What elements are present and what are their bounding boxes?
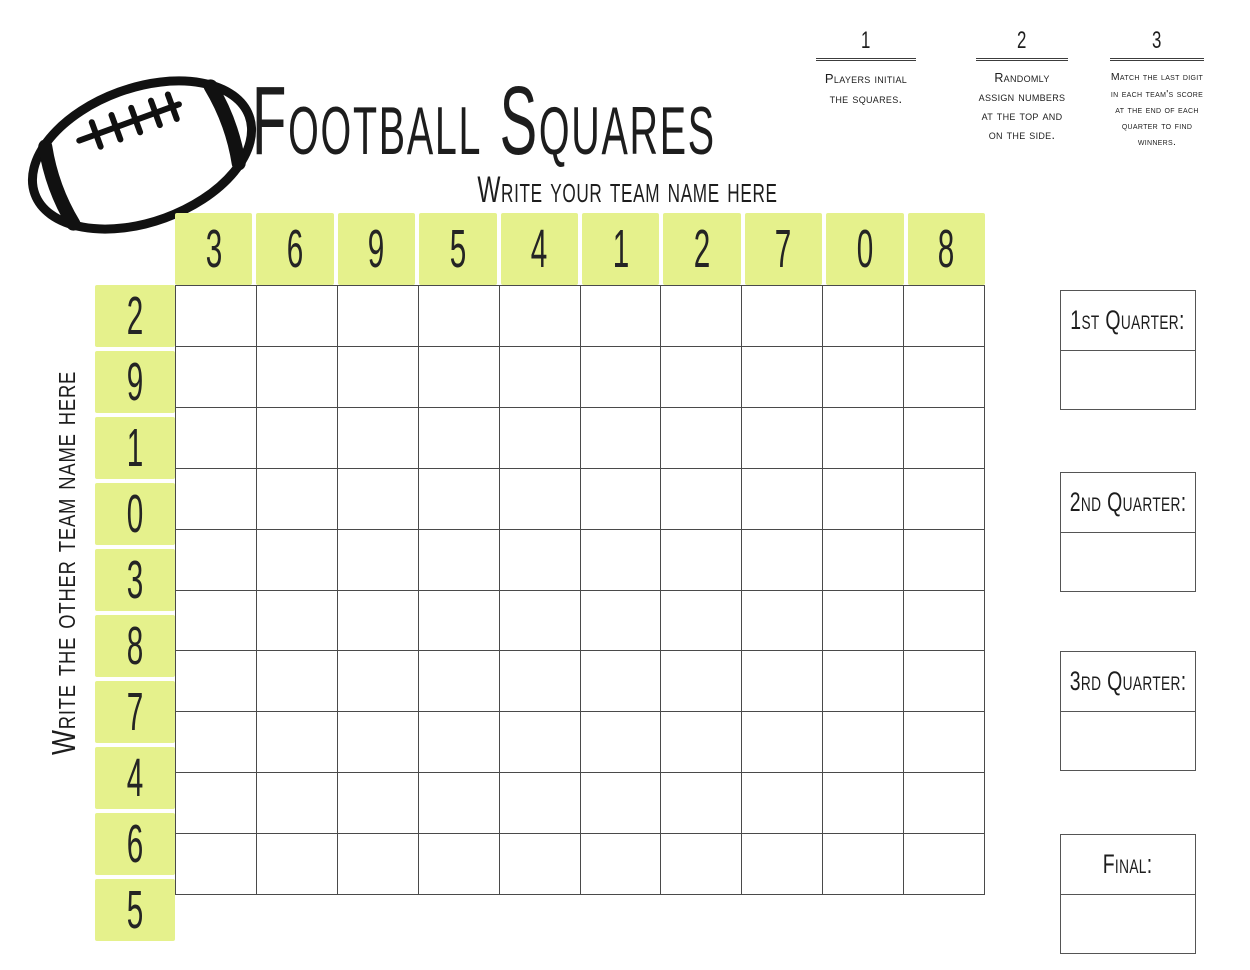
grid-cell[interactable] xyxy=(176,286,257,347)
grid-cell[interactable] xyxy=(661,651,742,712)
score-box-final-label: Final: xyxy=(1061,835,1195,895)
top-number-cell: 4 xyxy=(501,213,578,285)
grid-cell[interactable] xyxy=(500,469,581,530)
side-number-cell: 1 xyxy=(95,417,175,479)
grid-cell[interactable] xyxy=(419,530,500,591)
team-name-side-label-text: Write the other team name here xyxy=(47,371,81,755)
top-number: 5 xyxy=(450,218,467,280)
grid-cell[interactable] xyxy=(581,347,662,408)
side-number: 3 xyxy=(127,549,144,611)
grid-cell[interactable] xyxy=(257,530,338,591)
grid-cell[interactable] xyxy=(581,469,662,530)
side-number-cell: 7 xyxy=(95,681,175,743)
side-number-cell: 0 xyxy=(95,483,175,545)
grid-cell[interactable] xyxy=(257,834,338,895)
score-box-3rd-quarter: 3rd Quarter: xyxy=(1060,651,1196,771)
grid-cell[interactable] xyxy=(661,834,742,895)
grid-cell[interactable] xyxy=(419,834,500,895)
top-number-cell: 5 xyxy=(419,213,496,285)
grid-cell[interactable] xyxy=(742,651,823,712)
grid-cell[interactable] xyxy=(742,408,823,469)
grid-cell[interactable] xyxy=(338,286,419,347)
grid-cell[interactable] xyxy=(904,286,985,347)
grid-cell[interactable] xyxy=(500,651,581,712)
grid-cell[interactable] xyxy=(581,834,662,895)
side-number: 8 xyxy=(127,615,144,677)
score-box-final-input[interactable] xyxy=(1061,895,1195,953)
grid-cell[interactable] xyxy=(257,591,338,652)
step-1-number: 1 xyxy=(816,28,916,61)
score-box-2nd-quarter: 2nd Quarter: xyxy=(1060,472,1196,592)
page-title-text: Football Squares xyxy=(252,72,716,169)
grid-cell[interactable] xyxy=(581,651,662,712)
grid-cell[interactable] xyxy=(581,286,662,347)
step-1: 1 Players initial the squares. xyxy=(816,28,916,108)
grid-cell[interactable] xyxy=(742,591,823,652)
grid-cell[interactable] xyxy=(581,773,662,834)
score-box-3rd-quarter-input[interactable] xyxy=(1061,712,1195,770)
squares-grid xyxy=(175,285,985,895)
grid-cell[interactable] xyxy=(176,712,257,773)
top-number-cell: 1 xyxy=(582,213,659,285)
grid-cell[interactable] xyxy=(419,651,500,712)
grid-cell[interactable] xyxy=(904,347,985,408)
grid-cell[interactable] xyxy=(419,773,500,834)
grid-cell[interactable] xyxy=(338,469,419,530)
side-number-cell: 4 xyxy=(95,747,175,809)
grid-cell[interactable] xyxy=(661,591,742,652)
step-3-text: Match the last digit in each team's scor… xyxy=(1110,69,1204,150)
grid-cell[interactable] xyxy=(823,591,904,652)
top-number: 9 xyxy=(368,218,385,280)
grid-cell[interactable] xyxy=(581,408,662,469)
grid-cell[interactable] xyxy=(661,530,742,591)
grid-cell[interactable] xyxy=(823,773,904,834)
side-number: 0 xyxy=(127,483,144,545)
grid-cell[interactable] xyxy=(500,834,581,895)
grid-cell[interactable] xyxy=(257,773,338,834)
side-number: 9 xyxy=(127,351,144,413)
score-box-2nd-quarter-input[interactable] xyxy=(1061,533,1195,591)
side-number-cell: 3 xyxy=(95,549,175,611)
top-number: 0 xyxy=(857,218,874,280)
grid-cell[interactable] xyxy=(338,712,419,773)
grid-cell[interactable] xyxy=(500,408,581,469)
grid-cell[interactable] xyxy=(419,408,500,469)
grid-cell[interactable] xyxy=(904,408,985,469)
top-number-cell: 0 xyxy=(826,213,903,285)
grid-cell[interactable] xyxy=(904,530,985,591)
grid-cell[interactable] xyxy=(257,712,338,773)
grid-cell[interactable] xyxy=(338,834,419,895)
grid-cell[interactable] xyxy=(823,712,904,773)
grid-cell[interactable] xyxy=(257,469,338,530)
grid-cell[interactable] xyxy=(742,530,823,591)
top-number: 7 xyxy=(775,218,792,280)
grid-cell[interactable] xyxy=(338,591,419,652)
grid-cell[interactable] xyxy=(338,530,419,591)
grid-cell[interactable] xyxy=(823,834,904,895)
grid-cell[interactable] xyxy=(500,347,581,408)
step-3: 3 Match the last digit in each team's sc… xyxy=(1110,28,1204,151)
side-number: 4 xyxy=(127,747,144,809)
score-box-1st-quarter-label-text: 1st Quarter: xyxy=(1071,305,1186,336)
grid-cell[interactable] xyxy=(661,773,742,834)
step-3-number: 3 xyxy=(1110,28,1204,61)
grid-cell[interactable] xyxy=(742,773,823,834)
grid-cell[interactable] xyxy=(742,286,823,347)
grid-cell[interactable] xyxy=(500,286,581,347)
grid-cell[interactable] xyxy=(419,591,500,652)
grid-cell[interactable] xyxy=(257,347,338,408)
grid-cell[interactable] xyxy=(419,469,500,530)
score-box-1st-quarter-label: 1st Quarter: xyxy=(1061,291,1195,351)
grid-cell[interactable] xyxy=(419,712,500,773)
score-box-final-label-text: Final: xyxy=(1103,849,1153,880)
grid-cell[interactable] xyxy=(661,469,742,530)
grid-cell[interactable] xyxy=(904,651,985,712)
step-1-text: Players initial the squares. xyxy=(816,69,916,108)
grid-cell[interactable] xyxy=(661,286,742,347)
grid-cell[interactable] xyxy=(500,530,581,591)
side-number: 1 xyxy=(127,417,144,479)
grid-cell[interactable] xyxy=(581,712,662,773)
top-number: 1 xyxy=(612,218,629,280)
grid-cell[interactable] xyxy=(338,651,419,712)
side-number-cell: 8 xyxy=(95,615,175,677)
grid-cell[interactable] xyxy=(742,834,823,895)
score-box-2nd-quarter-label: 2nd Quarter: xyxy=(1061,473,1195,533)
grid-cell[interactable] xyxy=(338,347,419,408)
grid-cell[interactable] xyxy=(176,651,257,712)
score-box-1st-quarter-input[interactable] xyxy=(1061,351,1195,409)
grid-cell[interactable] xyxy=(176,773,257,834)
score-box-1st-quarter: 1st Quarter: xyxy=(1060,290,1196,410)
score-box-final: Final: xyxy=(1060,834,1196,954)
side-numbers-column: 2910387465 xyxy=(95,285,175,895)
grid-cell[interactable] xyxy=(257,651,338,712)
top-numbers-row: 3695412708 xyxy=(175,213,985,285)
top-number-cell: 7 xyxy=(745,213,822,285)
page-title: Football Squares xyxy=(252,72,1052,167)
side-number: 5 xyxy=(127,879,144,941)
grid-cell[interactable] xyxy=(742,347,823,408)
grid-cell[interactable] xyxy=(823,469,904,530)
team-name-side-label[interactable]: Write the other team name here xyxy=(47,373,81,803)
grid-cell[interactable] xyxy=(500,591,581,652)
side-number: 7 xyxy=(127,681,144,743)
grid-cell[interactable] xyxy=(823,651,904,712)
top-number-cell: 9 xyxy=(338,213,415,285)
side-number-cell: 6 xyxy=(95,813,175,875)
grid-cell[interactable] xyxy=(338,773,419,834)
step-2-number: 2 xyxy=(976,28,1068,61)
side-number-cell: 2 xyxy=(95,285,175,347)
top-number-cell: 3 xyxy=(175,213,252,285)
score-box-3rd-quarter-label: 3rd Quarter: xyxy=(1061,652,1195,712)
football-squares-sheet: Football Squares Write your team name he… xyxy=(0,0,1250,970)
side-number-cell: 9 xyxy=(95,351,175,413)
grid-cell[interactable] xyxy=(257,286,338,347)
grid-cell[interactable] xyxy=(176,591,257,652)
top-number-cell: 8 xyxy=(908,213,985,285)
grid-cell[interactable] xyxy=(661,712,742,773)
grid-cell[interactable] xyxy=(823,347,904,408)
side-number-cell: 5 xyxy=(95,879,175,941)
grid-cell[interactable] xyxy=(823,408,904,469)
grid-cell[interactable] xyxy=(823,286,904,347)
grid-cell[interactable] xyxy=(176,408,257,469)
side-number: 2 xyxy=(127,285,144,347)
grid-cell[interactable] xyxy=(904,591,985,652)
team-name-top-label[interactable]: Write your team name here xyxy=(400,170,770,211)
grid-cell[interactable] xyxy=(661,408,742,469)
grid-cell[interactable] xyxy=(661,347,742,408)
step-3-number-text: 3 xyxy=(1152,28,1161,54)
grid-cell[interactable] xyxy=(904,773,985,834)
grid-cell[interactable] xyxy=(419,286,500,347)
grid-cell[interactable] xyxy=(419,347,500,408)
top-number-cell: 2 xyxy=(663,213,740,285)
team-name-top-label-text: Write your team name here xyxy=(477,170,777,211)
grid-cell[interactable] xyxy=(257,408,338,469)
grid-cell[interactable] xyxy=(742,712,823,773)
grid-cell[interactable] xyxy=(176,530,257,591)
grid-cell[interactable] xyxy=(581,591,662,652)
step-2-number-text: 2 xyxy=(1017,28,1026,54)
grid-cell[interactable] xyxy=(823,530,904,591)
grid-cell[interactable] xyxy=(500,712,581,773)
top-number: 6 xyxy=(287,218,304,280)
side-number: 6 xyxy=(127,813,144,875)
top-number: 4 xyxy=(531,218,548,280)
step-1-number-text: 1 xyxy=(861,28,870,54)
step-2-text: Randomly assign numbers at the top and o… xyxy=(976,69,1068,144)
grid-cell[interactable] xyxy=(904,834,985,895)
top-number: 8 xyxy=(938,218,955,280)
grid-cell[interactable] xyxy=(904,469,985,530)
top-number-cell: 6 xyxy=(256,213,333,285)
score-box-3rd-quarter-label-text: 3rd Quarter: xyxy=(1070,666,1187,697)
grid-cell[interactable] xyxy=(176,347,257,408)
grid-cell[interactable] xyxy=(904,712,985,773)
step-2: 2 Randomly assign numbers at the top and… xyxy=(976,28,1068,144)
top-number: 3 xyxy=(205,218,222,280)
grid-cell[interactable] xyxy=(500,773,581,834)
grid-cell[interactable] xyxy=(338,408,419,469)
top-number: 2 xyxy=(694,218,711,280)
grid-cell[interactable] xyxy=(742,469,823,530)
grid-cell[interactable] xyxy=(176,469,257,530)
score-box-2nd-quarter-label-text: 2nd Quarter: xyxy=(1070,487,1187,518)
grid-cell[interactable] xyxy=(176,834,257,895)
grid-cell[interactable] xyxy=(581,530,662,591)
